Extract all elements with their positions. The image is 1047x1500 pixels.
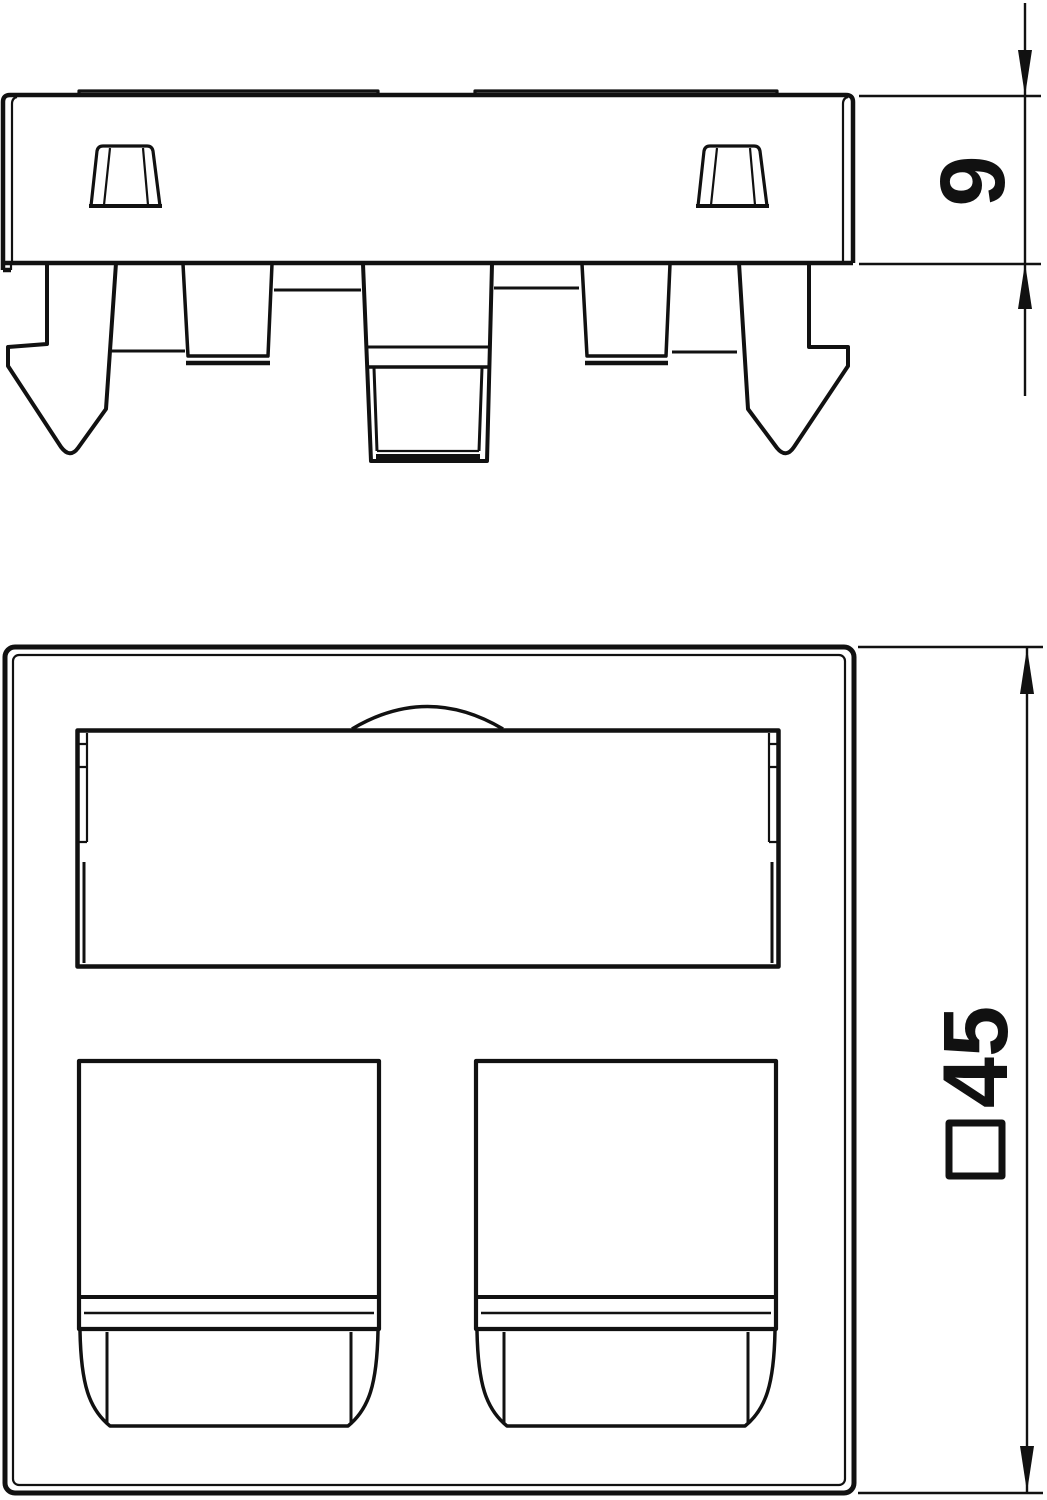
snap-foot-right [582, 264, 670, 356]
label-field-detail-left [79, 733, 87, 842]
jack-left-shutter [80, 1331, 378, 1426]
jack-right-frame [476, 1061, 776, 1329]
body-outline [3, 95, 853, 270]
jack-left-shutter-edges [107, 1332, 351, 1424]
body-inner-edge-left [12, 97, 17, 263]
size-dimension: 45 [858, 647, 1043, 1493]
size-dimension-label: 45 [925, 1006, 1027, 1108]
arrowhead-down-icon [1020, 1446, 1034, 1492]
jack-left-frame [79, 1061, 379, 1329]
jack-right-shutter-edges [504, 1332, 748, 1424]
square-symbol [949, 1123, 1002, 1176]
side-view [3, 91, 853, 461]
label-field [78, 731, 779, 967]
arrowhead-up-icon [1020, 648, 1034, 694]
plate-outline [5, 647, 854, 1493]
center-foot-inner-edges [374, 368, 482, 451]
body-inner-edge-right [843, 97, 848, 263]
snap-foot-left [183, 264, 272, 356]
front-view [5, 647, 854, 1493]
center-foot-outline [363, 264, 492, 461]
clip-right-outline [698, 146, 767, 206]
anchor-foot-right [739, 263, 848, 453]
arrowhead-up-icon [1018, 263, 1032, 309]
label-field-detail-right [769, 733, 777, 842]
clip-right-inner-lines [711, 148, 755, 205]
depth-dimension-label: 9 [922, 155, 1024, 206]
arrowhead-down-icon [1018, 50, 1032, 96]
drawing-sheet: 9 [0, 0, 1047, 1500]
jack-port-left [79, 1061, 379, 1426]
jack-right-shutter [477, 1331, 775, 1426]
clip-left-inner-lines [104, 148, 148, 205]
plate-inner-edge [13, 655, 845, 1485]
jack-port-right [476, 1061, 776, 1426]
label-field-finger-recess [352, 707, 503, 730]
anchor-foot-left [8, 263, 116, 453]
depth-dimension: 9 [859, 3, 1041, 396]
technical-drawing: 9 [0, 0, 1047, 1500]
clip-left-outline [91, 146, 160, 206]
